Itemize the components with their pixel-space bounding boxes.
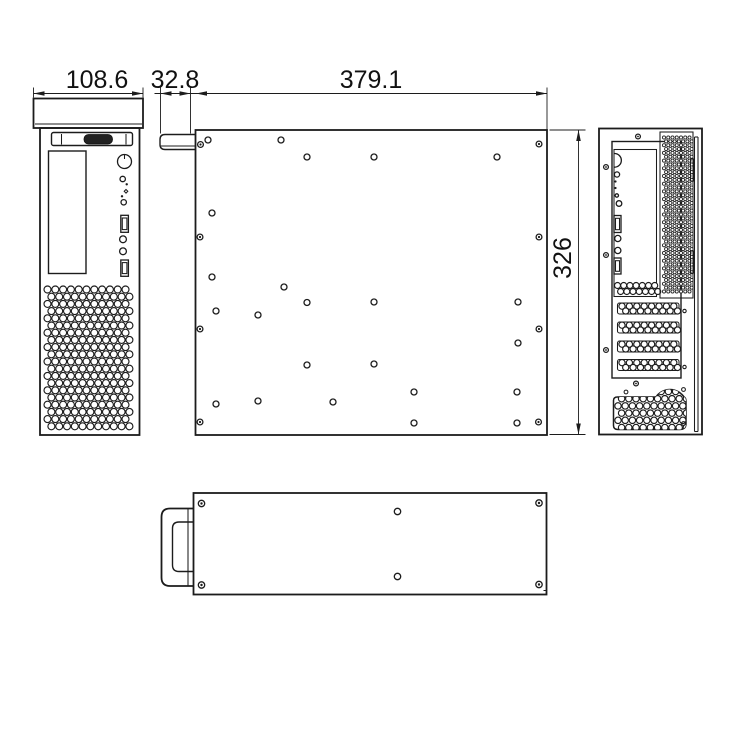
- vent-hole: [44, 315, 51, 322]
- vent-hole: [83, 344, 90, 351]
- vent-hole: [114, 387, 121, 394]
- vent-hole: [673, 255, 676, 258]
- vent-hole: [630, 364, 636, 370]
- vent-hole: [665, 278, 668, 281]
- vent-hole: [690, 225, 693, 228]
- vent-hole: [660, 308, 666, 314]
- vent-hole: [674, 327, 680, 333]
- drive-bay-cover: [49, 151, 87, 274]
- vent-hole: [679, 144, 682, 147]
- vent-hole: [671, 228, 674, 231]
- vent-hole: [669, 217, 672, 220]
- vent-hole: [644, 388, 650, 394]
- vent-hole: [686, 171, 689, 174]
- vent-hole: [675, 282, 678, 285]
- mic-jack-icon: [121, 200, 126, 205]
- vent-hole: [126, 365, 133, 372]
- vent-hole: [662, 228, 665, 231]
- vent-hole: [79, 380, 86, 387]
- usb-port-tongue: [616, 261, 620, 272]
- dimension-label-front-width: 108.6: [66, 66, 129, 94]
- usb-port-tongue: [122, 263, 127, 274]
- vent-hole: [114, 372, 121, 379]
- usb-port-bottom-icon: [121, 260, 129, 276]
- vent-hole: [44, 329, 51, 336]
- vent-hole: [679, 213, 682, 216]
- vent-hole: [629, 388, 635, 394]
- vent-hole: [676, 396, 682, 402]
- arrowhead-icon: [536, 91, 547, 96]
- panel-screw-center: [537, 421, 539, 423]
- vent-hole: [52, 372, 59, 379]
- vent-hole: [118, 380, 125, 387]
- vent-hole: [91, 387, 98, 394]
- vent-hole: [83, 300, 90, 307]
- vent-hole: [636, 289, 642, 295]
- vent-hole: [667, 275, 670, 278]
- vent-hole: [684, 174, 687, 177]
- vent-hole: [75, 401, 82, 408]
- vent-hole: [652, 346, 658, 352]
- vent-hole: [677, 240, 680, 243]
- vent-hole: [688, 228, 691, 231]
- vent-hole: [52, 401, 59, 408]
- vent-hole: [679, 198, 682, 201]
- vent-hole: [690, 217, 693, 220]
- panel-hole: [514, 420, 520, 426]
- vent-hole: [615, 417, 621, 423]
- vent-hole: [675, 251, 678, 254]
- vent-hole: [690, 155, 693, 158]
- vent-hole: [686, 163, 689, 166]
- vent-hole: [665, 148, 668, 151]
- vent-hole: [682, 286, 685, 289]
- vent-hole: [110, 365, 117, 372]
- vent-hole: [64, 293, 71, 300]
- vent-hole: [669, 140, 672, 143]
- vent-hole: [658, 403, 664, 409]
- vent-hole: [615, 403, 621, 409]
- vent-hole: [682, 194, 685, 197]
- vent-hole: [671, 167, 674, 170]
- vent-hole: [677, 232, 680, 235]
- corner-screw-center: [200, 502, 202, 504]
- vent-hole: [667, 190, 670, 193]
- dimension-front-width: 108.6: [34, 66, 144, 98]
- vent-hole: [686, 178, 689, 181]
- vent-hole: [671, 282, 674, 285]
- vent-hole: [660, 327, 666, 333]
- vent-hole: [669, 194, 672, 197]
- vent-hole: [688, 198, 691, 201]
- vent-hole: [677, 225, 680, 228]
- vent-hole: [71, 365, 78, 372]
- vent-hole: [673, 263, 676, 266]
- led-dot-icon: [614, 180, 616, 182]
- vent-hole: [644, 417, 650, 423]
- pci-slots: [618, 303, 681, 371]
- vent-hole: [623, 364, 629, 370]
- vent-hole: [618, 410, 624, 416]
- vent-hole: [690, 240, 693, 243]
- vent-hole: [110, 322, 117, 329]
- vent-hole: [671, 290, 674, 293]
- vent-hole: [662, 267, 665, 270]
- vent-hole: [636, 403, 642, 409]
- vent-hole: [52, 300, 59, 307]
- vent-hole: [651, 388, 657, 394]
- vent-hole: [126, 408, 133, 415]
- vent-hole: [665, 403, 671, 409]
- vent-hole: [106, 286, 113, 293]
- vent-hole: [690, 286, 693, 289]
- vent-hole: [122, 372, 129, 379]
- vent-hole: [106, 329, 113, 336]
- vent-hole: [71, 336, 78, 343]
- vent-hole: [652, 327, 658, 333]
- vent-hole: [110, 380, 117, 387]
- vent-hole: [669, 148, 672, 151]
- pci-slot-screws: [683, 309, 686, 368]
- vent-hole: [677, 217, 680, 220]
- connector-round-icon: [616, 201, 622, 207]
- rear-view: [599, 129, 702, 435]
- vent-hole: [75, 344, 82, 351]
- vent-hole: [56, 408, 63, 415]
- psu-screw: [624, 390, 628, 394]
- vent-hole: [95, 408, 102, 415]
- vent-hole: [684, 267, 687, 270]
- vent-hole: [118, 394, 125, 401]
- vent-hole: [99, 315, 106, 322]
- vent-hole: [75, 329, 82, 336]
- vent-hole: [669, 263, 672, 266]
- vent-hole: [645, 364, 651, 370]
- vent-hole: [662, 136, 665, 139]
- vent-hole: [688, 236, 691, 239]
- vent-hole: [126, 308, 133, 315]
- vent-hole: [690, 186, 693, 189]
- vent-hole: [640, 410, 646, 416]
- vent-hole: [114, 300, 121, 307]
- vent-hole: [79, 394, 86, 401]
- vent-hole: [669, 186, 672, 189]
- panel-screw-center: [538, 328, 540, 330]
- side-panel-screws: [197, 141, 542, 425]
- vent-hole: [114, 344, 121, 351]
- vent-hole: [673, 140, 676, 143]
- vent-hole: [71, 293, 78, 300]
- dimension-body-length: 379.1: [196, 66, 547, 130]
- vent-hole: [95, 336, 102, 343]
- vent-hole: [44, 387, 51, 394]
- audio-jack-icon: [615, 247, 621, 253]
- vent-hole: [686, 201, 689, 204]
- vent-hole: [669, 240, 672, 243]
- vent-hole: [665, 178, 668, 181]
- vent-hole: [662, 167, 665, 170]
- vent-hole: [651, 417, 657, 423]
- vent-hole: [91, 416, 98, 423]
- vent-hole: [106, 300, 113, 307]
- vent-hole: [673, 178, 676, 181]
- vent-hole: [87, 394, 94, 401]
- vent-hole: [662, 221, 665, 224]
- vent-hole: [669, 232, 672, 235]
- dimension-label-handle-depth: 32.8: [151, 66, 200, 94]
- panel-hole: [394, 508, 400, 514]
- vent-hole: [686, 271, 689, 274]
- vent-hole: [87, 351, 94, 358]
- vent-hole: [667, 159, 670, 162]
- vent-hole: [103, 351, 110, 358]
- vent-plate-tab: [691, 251, 694, 273]
- vent-hole: [662, 396, 668, 402]
- vent-hole: [626, 410, 632, 416]
- vent-hole: [679, 190, 682, 193]
- panel-hole: [411, 420, 417, 426]
- vent-hole: [662, 151, 665, 154]
- vent-hole: [677, 194, 680, 197]
- vent-hole: [75, 387, 82, 394]
- vent-hole: [665, 248, 668, 251]
- vent-hole: [665, 194, 668, 197]
- vent-hole: [114, 358, 121, 365]
- handle-grip-profile: [173, 522, 194, 572]
- vent-hole: [71, 322, 78, 329]
- vent-hole: [667, 151, 670, 154]
- vent-hole: [87, 380, 94, 387]
- vent-hole: [91, 372, 98, 379]
- vent-hole: [669, 225, 672, 228]
- vent-hole: [114, 315, 121, 322]
- vent-hole: [682, 225, 685, 228]
- vent-hole: [677, 278, 680, 281]
- vent-hole: [688, 182, 691, 185]
- vent-hole: [48, 336, 55, 343]
- vent-hole: [67, 372, 74, 379]
- vent-hole: [667, 327, 673, 333]
- frame-screw-center: [605, 349, 607, 351]
- vent-hole: [679, 159, 682, 162]
- carry-handle: [162, 509, 194, 587]
- corner-screw-center: [538, 502, 540, 504]
- vent-hole: [56, 336, 63, 343]
- vent-hole: [629, 417, 635, 423]
- vent-hole: [87, 322, 94, 329]
- vent-hole: [679, 236, 682, 239]
- vent-hole: [83, 416, 90, 423]
- vent-hole: [677, 209, 680, 212]
- vent-hole: [669, 155, 672, 158]
- vent-hole: [114, 286, 121, 293]
- vent-hole: [126, 423, 133, 430]
- vent-hole: [652, 364, 658, 370]
- vent-hole: [673, 194, 676, 197]
- vent-hole: [686, 240, 689, 243]
- vent-hole: [662, 205, 665, 208]
- vent-hole: [679, 244, 682, 247]
- vent-hole: [67, 416, 74, 423]
- vent-hole: [60, 286, 67, 293]
- vent-hole: [690, 209, 693, 212]
- vent-hole: [48, 293, 55, 300]
- vent-hole: [83, 358, 90, 365]
- vent-hole: [673, 186, 676, 189]
- vent-hole: [647, 410, 653, 416]
- vent-hole: [60, 315, 67, 322]
- vent-hole: [677, 255, 680, 258]
- vent-hole: [688, 275, 691, 278]
- vent-hole: [682, 186, 685, 189]
- vent-hole: [665, 255, 668, 258]
- vent-hole: [44, 300, 51, 307]
- vent-hole: [674, 308, 680, 314]
- vent-hole: [652, 308, 658, 314]
- vent-hole: [667, 228, 670, 231]
- vent-hole: [662, 290, 665, 293]
- vent-hole: [679, 282, 682, 285]
- vent-hole: [669, 396, 675, 402]
- vent-hole: [103, 336, 110, 343]
- vent-hole: [118, 336, 125, 343]
- vent-hole: [667, 282, 670, 285]
- vent-hole: [688, 290, 691, 293]
- vent-hole: [675, 267, 678, 270]
- vent-hole: [99, 416, 106, 423]
- vent-hole: [686, 278, 689, 281]
- frame-screw-center: [605, 166, 607, 168]
- vent-hole: [667, 267, 670, 270]
- vent-hole: [64, 423, 71, 430]
- vent-hole: [637, 364, 643, 370]
- vent-hole: [686, 248, 689, 251]
- vent-hole: [690, 278, 693, 281]
- vent-hole: [682, 171, 685, 174]
- vent-hole: [673, 201, 676, 204]
- vent-hole: [95, 394, 102, 401]
- vent-hole: [688, 282, 691, 285]
- vent-hole: [103, 322, 110, 329]
- vent-hole: [623, 327, 629, 333]
- vent-hole: [118, 293, 125, 300]
- vent-hole: [645, 308, 651, 314]
- vent-hole: [118, 322, 125, 329]
- dimension-label-body-length: 379.1: [340, 66, 403, 94]
- vent-hole: [662, 410, 668, 416]
- dimension-label-body-height: 326: [549, 237, 577, 279]
- vent-hole: [64, 408, 71, 415]
- vent-hole: [110, 351, 117, 358]
- vent-hole: [621, 283, 627, 289]
- panel-screw-center: [199, 143, 201, 145]
- vent-hole: [52, 358, 59, 365]
- vent-hole: [646, 283, 652, 289]
- rear-side-flange: [695, 137, 699, 432]
- vent-hole: [71, 351, 78, 358]
- vent-hole: [60, 344, 67, 351]
- vent-hole: [669, 278, 672, 281]
- vent-hole: [630, 327, 636, 333]
- vent-hole: [95, 308, 102, 315]
- vent-hole: [75, 300, 82, 307]
- vent-hole: [677, 271, 680, 274]
- vent-hole: [660, 346, 666, 352]
- vent-hole: [665, 286, 668, 289]
- vent-hole: [44, 372, 51, 379]
- vent-hole: [60, 358, 67, 365]
- frame-screw-center: [635, 383, 637, 385]
- vent-hole: [686, 140, 689, 143]
- vent-hole: [665, 140, 668, 143]
- vent-hole: [79, 293, 86, 300]
- vent-hole: [671, 251, 674, 254]
- vent-hole: [677, 155, 680, 158]
- vent-hole: [682, 148, 685, 151]
- vent-hole: [83, 401, 90, 408]
- vent-hole: [673, 217, 676, 220]
- vent-hole: [665, 240, 668, 243]
- vent-hole: [67, 344, 74, 351]
- vent-hole: [675, 198, 678, 201]
- vent-hole: [671, 182, 674, 185]
- vent-hole: [662, 244, 665, 247]
- led-dot-icon: [614, 187, 616, 189]
- panel-screw-center: [538, 143, 540, 145]
- side-view: [160, 130, 547, 435]
- vent-hole: [686, 194, 689, 197]
- panel-hole: [371, 154, 377, 160]
- vent-hole: [662, 251, 665, 254]
- vent-hole: [633, 283, 639, 289]
- panel-hole: [304, 300, 310, 306]
- chassis-technical-drawing: 108.6 32.8 379.1 326: [0, 0, 750, 750]
- vent-hole: [64, 308, 71, 315]
- vent-hole: [75, 416, 82, 423]
- vent-hole: [122, 358, 129, 365]
- vent-hole: [658, 417, 664, 423]
- vent-hole: [676, 410, 682, 416]
- vent-hole: [690, 148, 693, 151]
- vent-hole: [667, 244, 670, 247]
- vent-hole: [662, 213, 665, 216]
- vent-hole: [644, 403, 650, 409]
- vent-hole: [52, 315, 59, 322]
- vent-hole: [126, 322, 133, 329]
- front-io-panel: [118, 155, 132, 277]
- vent-hole: [669, 163, 672, 166]
- vent-hole: [122, 344, 129, 351]
- vent-hole: [686, 286, 689, 289]
- vent-hole: [679, 290, 682, 293]
- vent-hole: [91, 358, 98, 365]
- usb-port-tongue: [122, 218, 127, 230]
- vent-hole: [675, 159, 678, 162]
- vent-hole: [110, 423, 117, 430]
- vent-hole: [118, 423, 125, 430]
- vent-hole: [48, 394, 55, 401]
- vent-hole: [669, 201, 672, 204]
- vent-hole: [686, 155, 689, 158]
- vent-hole: [690, 140, 693, 143]
- vent-hole: [667, 174, 670, 177]
- vent-hole: [83, 329, 90, 336]
- vent-hole: [636, 417, 642, 423]
- vent-hole: [95, 365, 102, 372]
- vent-hole: [633, 410, 639, 416]
- vent-hole: [75, 286, 82, 293]
- vent-hole: [688, 151, 691, 154]
